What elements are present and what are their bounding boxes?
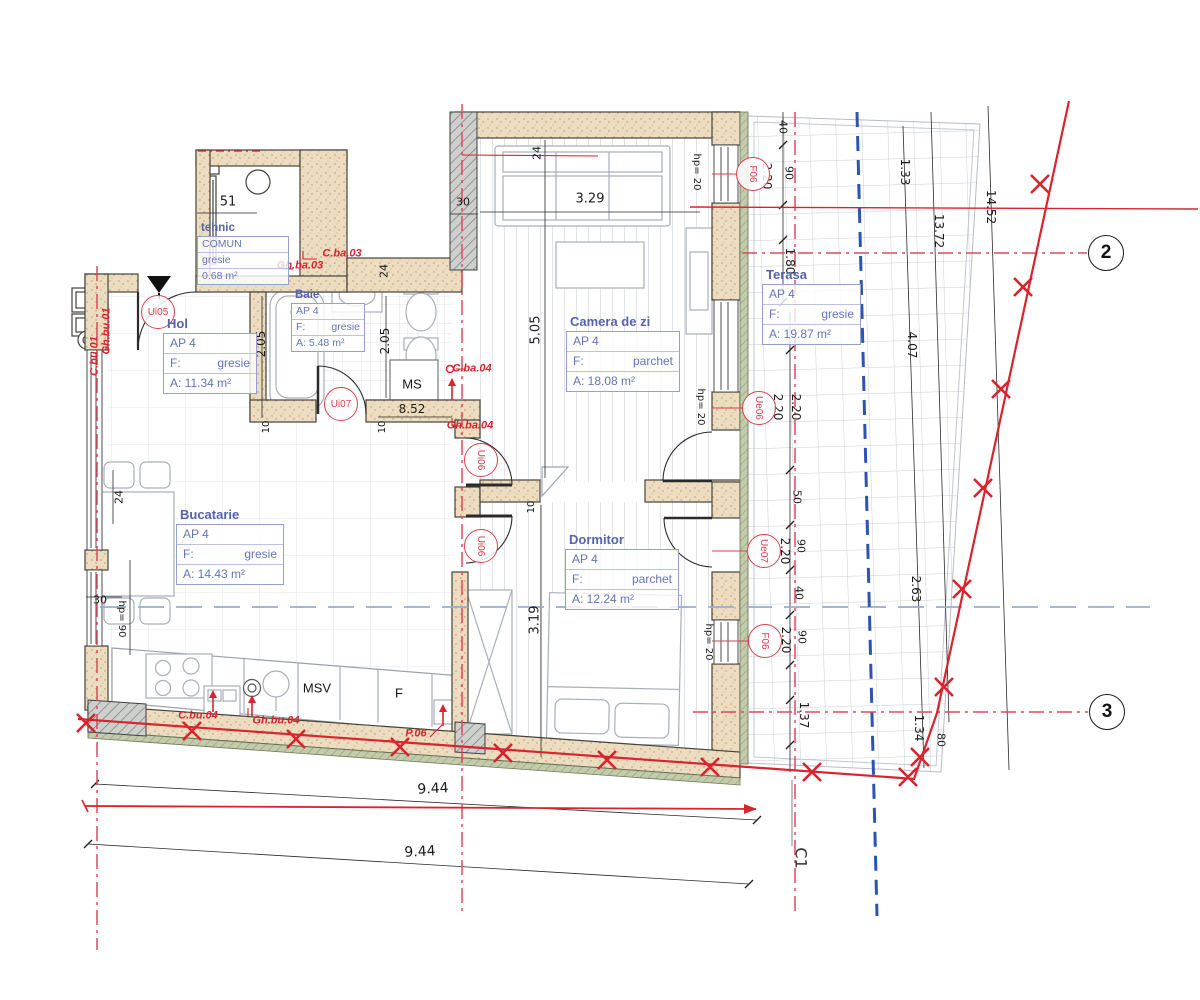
floor-plan-drawing xyxy=(0,0,1200,1000)
sofa xyxy=(495,146,670,226)
floor-plan-page: 513.292430242.052.055.058.521010103.1924… xyxy=(0,0,1200,1000)
window-left-long xyxy=(87,350,102,550)
window-livingroom xyxy=(714,300,738,392)
bed xyxy=(546,593,681,746)
washing-machine xyxy=(390,360,438,400)
red-arrowhead xyxy=(744,804,757,814)
toilet xyxy=(406,293,436,331)
tv-bench xyxy=(686,228,712,334)
coffee-table xyxy=(556,242,644,288)
wardrobe xyxy=(466,590,512,734)
window-f06-bottom xyxy=(714,620,738,664)
round-sink xyxy=(263,671,289,697)
window-left-short xyxy=(87,570,102,646)
